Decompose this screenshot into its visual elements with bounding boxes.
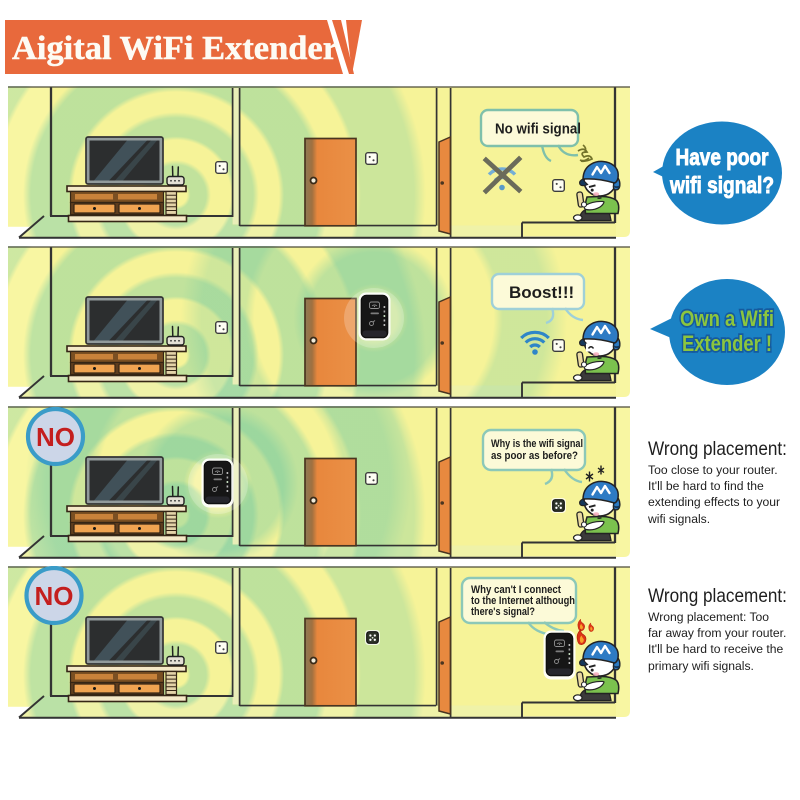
svg-text:Have poor: Have poor	[676, 144, 769, 170]
svg-text:Extender !: Extender !	[682, 331, 772, 356]
svg-text:Own a Wifi: Own a Wifi	[680, 306, 774, 331]
svg-text:as poor as before?: as poor as before?	[491, 450, 578, 462]
svg-text:NO: NO	[36, 422, 75, 452]
svg-text:No wifi signal: No wifi signal	[495, 121, 581, 138]
svg-text:there's signal?: there's signal?	[471, 606, 535, 618]
svg-text:Aigital WiFi Extender: Aigital WiFi Extender	[12, 30, 338, 67]
svg-text:NO: NO	[35, 581, 74, 611]
svg-text:wifi signal?: wifi signal?	[669, 172, 774, 198]
svg-text:Why is the wifi signal: Why is the wifi signal	[491, 438, 583, 450]
svg-text:Boost!!!: Boost!!!	[509, 283, 574, 302]
